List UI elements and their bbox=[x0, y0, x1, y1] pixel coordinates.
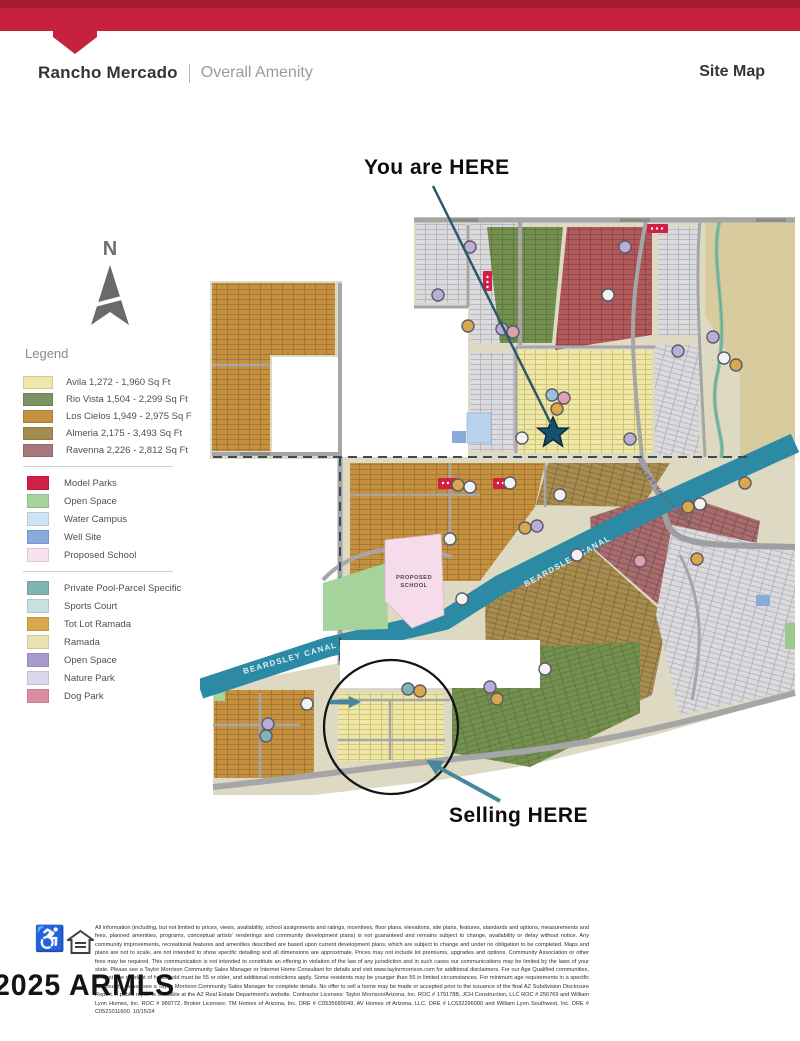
map-blank-patch bbox=[340, 640, 540, 688]
legend-swatch bbox=[27, 689, 49, 703]
well-site-area bbox=[756, 595, 770, 606]
legend-landuse-item: Proposed School bbox=[23, 548, 198, 562]
legend-swatch bbox=[27, 512, 49, 526]
site-map: BEARDSLEY CANAL BEARDSLEY CANAL HAPPY VA… bbox=[200, 195, 800, 845]
legend-amenity-item: Ramada bbox=[23, 635, 198, 649]
legend-community-item: Avila 1,272 - 1,960 Sq Ft bbox=[23, 376, 198, 389]
north-compass: N bbox=[80, 238, 140, 338]
legend-swatch bbox=[23, 427, 53, 440]
legend-swatch bbox=[27, 599, 49, 613]
legend-swatch bbox=[23, 376, 53, 389]
legend-swatch bbox=[27, 635, 49, 649]
legend-panel: Legend Avila 1,272 - 1,960 Sq Ft Rio Vis… bbox=[23, 346, 198, 707]
parcels-gray bbox=[658, 227, 698, 335]
page-subtitle: Overall Amenity bbox=[201, 64, 313, 82]
legend-title: Legend bbox=[25, 346, 198, 361]
legend-swatch bbox=[27, 581, 49, 595]
legend-swatch bbox=[27, 617, 49, 631]
legend-swatch bbox=[27, 530, 49, 544]
legend-swatch bbox=[23, 444, 53, 457]
legend-divider bbox=[23, 466, 173, 467]
page-header: Rancho Mercado Overall Amenity bbox=[38, 60, 313, 86]
legend-swatch bbox=[23, 393, 53, 406]
legend-amenity-item: Private Pool-Parcel Specific bbox=[23, 581, 198, 595]
open-space-strip bbox=[785, 623, 795, 649]
accessibility-icon: ♿ bbox=[34, 927, 65, 952]
legend-community-item: Almeria 2,175 - 3,493 Sq Ft bbox=[23, 427, 198, 440]
legend-swatch bbox=[27, 653, 49, 667]
legend-amenity-item: Sports Court bbox=[23, 599, 198, 613]
legend-divider bbox=[23, 571, 173, 572]
equal-housing-icon bbox=[67, 929, 94, 955]
compass-needle-icon bbox=[82, 261, 138, 333]
flyer-page: Rancho Mercado Overall Amenity Site Map … bbox=[0, 0, 800, 1041]
legend-community-item: Ravenna 2,226 - 2,812 Sq Ft bbox=[23, 444, 198, 457]
legend-community-item: Rio Vista 1,504 - 2,299 Sq Ft bbox=[23, 393, 198, 406]
legend-swatch bbox=[27, 548, 49, 562]
you-are-here-label: You are HERE bbox=[364, 156, 510, 180]
sitemap-label: Site Map bbox=[699, 63, 765, 81]
legend-amenity-item: Tot Lot Ramada bbox=[23, 617, 198, 631]
legend-landuse-item: Well Site bbox=[23, 530, 198, 544]
legend-landuse-item: Water Campus bbox=[23, 512, 198, 526]
parcels-gray bbox=[656, 525, 795, 715]
map-vacant-notch bbox=[272, 357, 338, 452]
north-label: N bbox=[80, 238, 140, 261]
legend-swatch bbox=[27, 494, 49, 508]
parcels-gray bbox=[655, 345, 699, 455]
legend-amenity-item: Dog Park bbox=[23, 689, 198, 703]
parcels-ravenna-north bbox=[555, 227, 652, 350]
banner-ribbon-icon bbox=[53, 31, 99, 55]
legend-amenity-item: Nature Park bbox=[23, 671, 198, 685]
armls-watermark: 2025 ARMLS bbox=[0, 969, 175, 1003]
water-campus-area bbox=[467, 413, 491, 443]
proposed-school-label: SCHOOL bbox=[400, 583, 427, 589]
title-separator bbox=[189, 64, 190, 83]
legend-amenity-item: Open Space bbox=[23, 653, 198, 667]
banner-top-stripe bbox=[0, 0, 800, 8]
legend-community-item: Los Cielos 1,949 - 2,975 Sq F bbox=[23, 410, 198, 423]
well-site-area bbox=[452, 431, 466, 443]
legend-swatch bbox=[27, 476, 49, 490]
legend-swatch bbox=[27, 671, 49, 685]
community-name: Rancho Mercado bbox=[38, 63, 178, 83]
legend-landuse-item: Model Parks bbox=[23, 476, 198, 490]
proposed-school-label: PROPOSED bbox=[396, 575, 432, 581]
banner-bar bbox=[0, 8, 800, 31]
legend-swatch bbox=[23, 410, 53, 423]
legend-landuse-item: Open Space bbox=[23, 494, 198, 508]
